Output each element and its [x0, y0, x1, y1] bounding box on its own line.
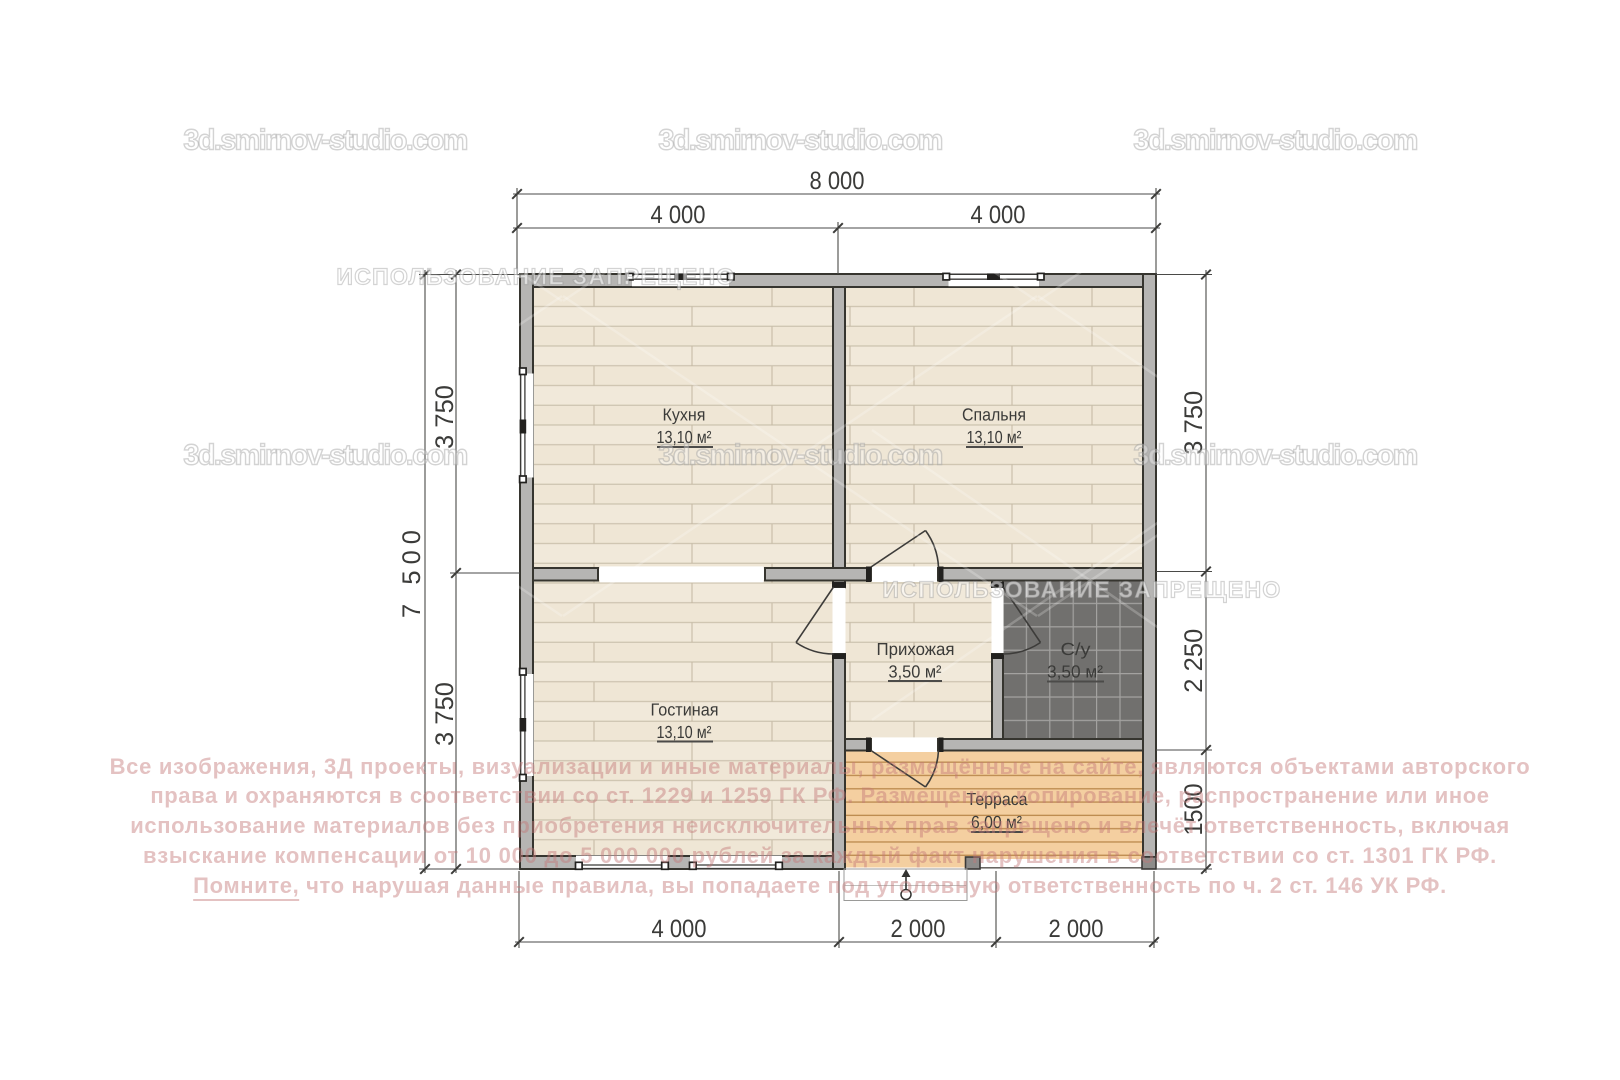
svg-text:4 000: 4 000: [971, 201, 1026, 229]
svg-text:3,50 м²: 3,50 м²: [1047, 662, 1103, 682]
svg-text:Спальня: Спальня: [962, 405, 1026, 425]
svg-text:2 000: 2 000: [891, 915, 946, 943]
svg-text:8 000: 8 000: [810, 167, 865, 195]
svg-text:3,50 м²: 3,50 м²: [889, 662, 942, 682]
svg-text:Кухня: Кухня: [663, 405, 706, 425]
svg-text:Гостиная: Гостиная: [651, 700, 719, 720]
svg-text:4 000: 4 000: [652, 915, 707, 943]
svg-text:3 750: 3 750: [431, 682, 459, 746]
svg-text:13,10 м²: 13,10 м²: [967, 427, 1022, 447]
svg-text:4 000: 4 000: [651, 201, 706, 229]
svg-text:2 250: 2 250: [1180, 629, 1208, 693]
svg-text:Прихожая: Прихожая: [877, 639, 955, 659]
svg-text:С/у: С/у: [1061, 639, 1091, 659]
svg-text:2 000: 2 000: [1049, 915, 1104, 943]
svg-text:7 500: 7 500: [398, 530, 426, 618]
svg-text:13,10 м²: 13,10 м²: [657, 722, 712, 742]
